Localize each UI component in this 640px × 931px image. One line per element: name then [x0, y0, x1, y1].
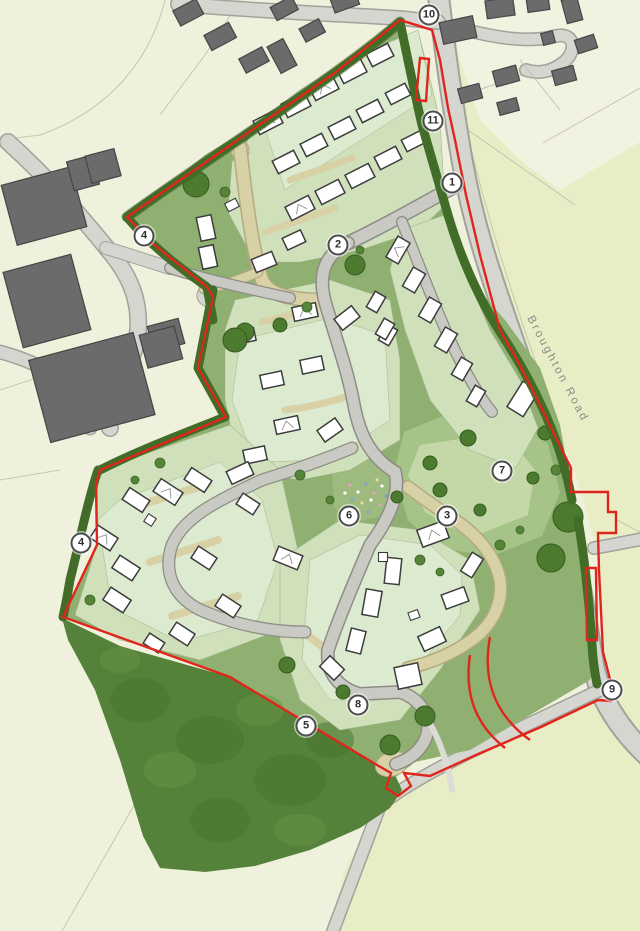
- marker-6: 6: [339, 506, 360, 527]
- marker-2-label: 2: [335, 240, 341, 251]
- marker-2: 2: [328, 235, 349, 256]
- marker-4-north-label: 4: [141, 231, 147, 242]
- marker-11-label: 11: [427, 116, 439, 127]
- marker-7: 7: [492, 461, 513, 482]
- masterplan-map: Broughton Road 1 2 3 4 4 5 6 7 8 9 10 11: [0, 0, 640, 931]
- marker-1: 1: [442, 173, 463, 194]
- site-plan-drawing: Broughton Road: [0, 0, 640, 931]
- marker-9: 9: [602, 680, 623, 701]
- marker-3: 3: [437, 506, 458, 527]
- marker-10: 10: [419, 5, 440, 26]
- marker-8: 8: [348, 695, 369, 716]
- marker-10-label: 10: [423, 10, 435, 21]
- marker-5: 5: [296, 716, 317, 737]
- marker-4-west-label: 4: [78, 538, 84, 549]
- marker-4-west: 4: [71, 533, 92, 554]
- marker-4-north: 4: [134, 226, 155, 247]
- marker-7-label: 7: [499, 466, 505, 477]
- marker-6-label: 6: [346, 511, 352, 522]
- marker-8-label: 8: [355, 700, 361, 711]
- marker-11: 11: [423, 111, 444, 132]
- marker-5-label: 5: [303, 721, 309, 732]
- marker-3-label: 3: [444, 511, 450, 522]
- marker-1-label: 1: [449, 178, 455, 189]
- marker-9-label: 9: [609, 685, 615, 696]
